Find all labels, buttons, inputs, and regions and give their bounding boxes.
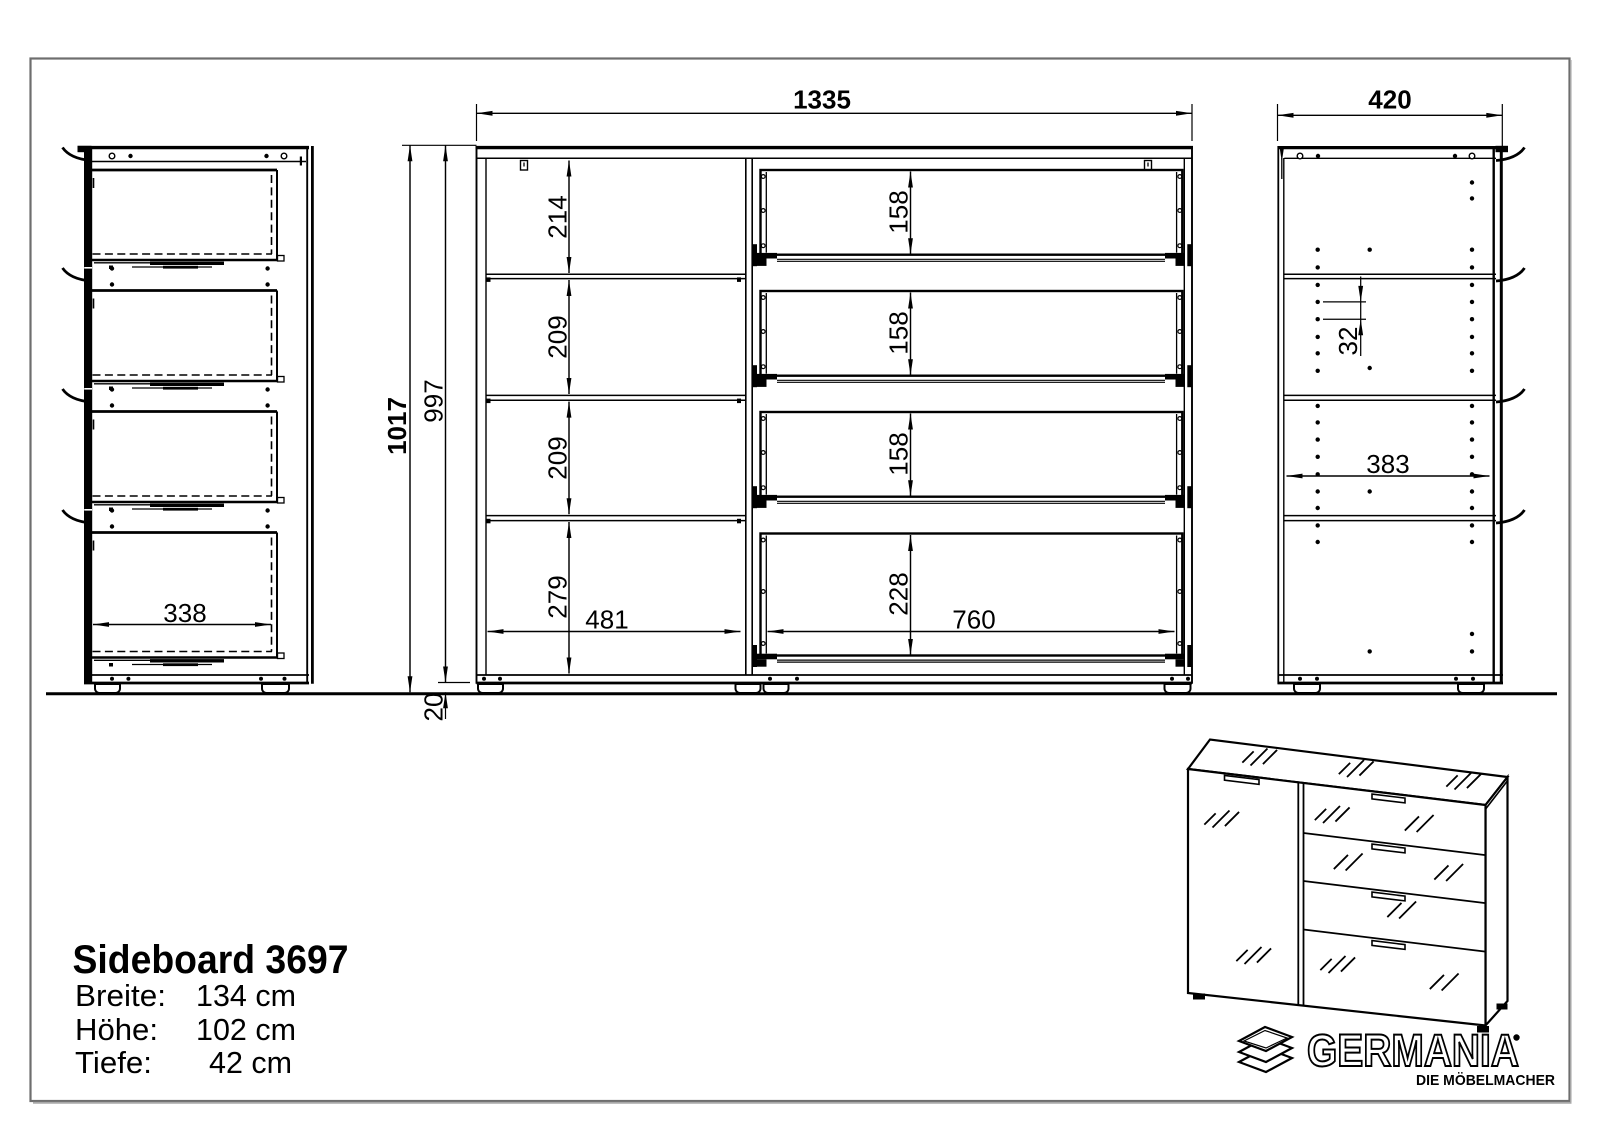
svg-text:32: 32 [1333, 327, 1363, 356]
svg-text:134 cm: 134 cm [196, 978, 296, 1013]
svg-text:20: 20 [419, 693, 449, 722]
svg-text:102 cm: 102 cm [196, 1012, 296, 1047]
svg-text:Höhe:: Höhe: [75, 1012, 158, 1047]
svg-text:279: 279 [543, 575, 573, 618]
svg-text:GERMANIA: GERMANIA [1307, 1025, 1519, 1076]
svg-text:1335: 1335 [793, 85, 851, 115]
svg-text:228: 228 [884, 572, 914, 615]
svg-text:997: 997 [419, 379, 449, 422]
svg-text:214: 214 [543, 195, 573, 238]
svg-text:42 cm: 42 cm [209, 1045, 292, 1080]
svg-text:481: 481 [585, 605, 628, 635]
svg-text:DIE MÖBELMACHER: DIE MÖBELMACHER [1416, 1072, 1555, 1089]
svg-text:338: 338 [163, 598, 206, 628]
svg-text:158: 158 [884, 190, 914, 233]
svg-text:1017: 1017 [382, 397, 412, 455]
svg-text:760: 760 [952, 605, 995, 635]
svg-text:158: 158 [884, 432, 914, 475]
svg-text:209: 209 [543, 436, 573, 479]
svg-text:158: 158 [884, 311, 914, 354]
svg-text:209: 209 [543, 315, 573, 358]
svg-text:383: 383 [1366, 449, 1409, 479]
svg-text:420: 420 [1368, 85, 1411, 115]
svg-text:Breite:: Breite: [75, 978, 166, 1013]
svg-text:Tiefe:: Tiefe: [75, 1045, 152, 1080]
svg-text:Sideboard 3697: Sideboard 3697 [73, 938, 349, 982]
